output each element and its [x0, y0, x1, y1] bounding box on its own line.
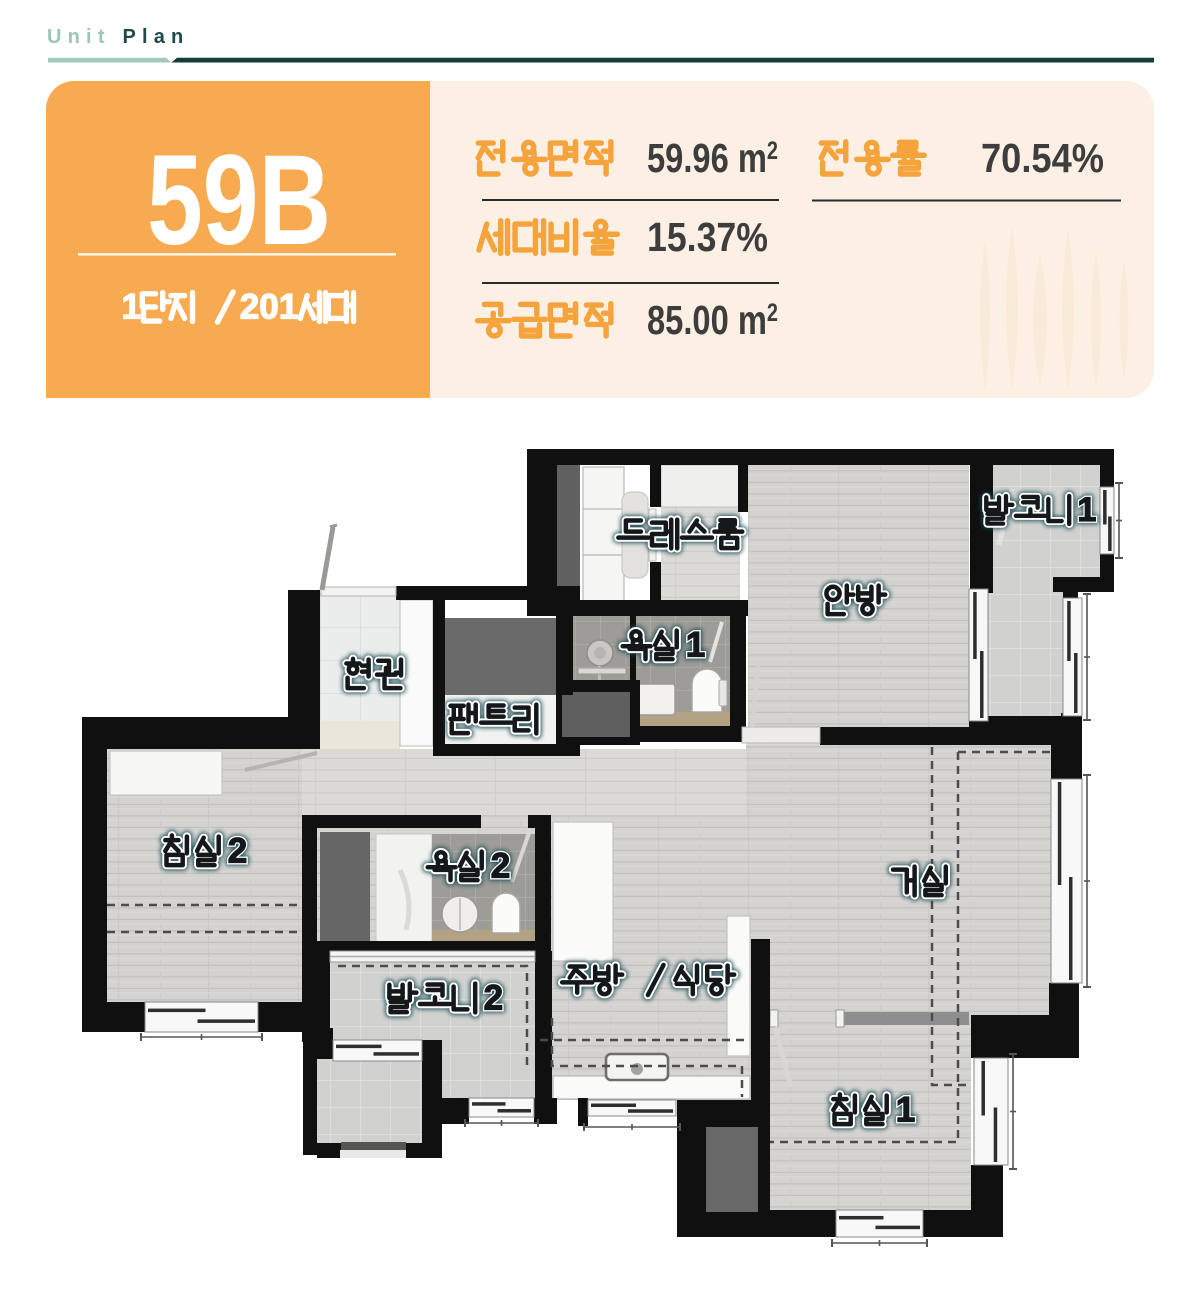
svg-text:1: 1 [686, 626, 705, 665]
svg-text:70.54%: 70.54% [981, 135, 1104, 181]
svg-text:59.96 m2: 59.96 m2 [647, 135, 778, 181]
svg-text:1: 1 [1077, 491, 1096, 529]
svg-text:59B: 59B [147, 129, 331, 272]
svg-text:15.37%: 15.37% [647, 214, 768, 260]
svg-text:1: 1 [122, 288, 141, 327]
svg-text:2: 2 [228, 832, 247, 871]
svg-text:85.00 m2: 85.00 m2 [647, 297, 778, 343]
svg-text:0: 0 [259, 288, 278, 327]
svg-text:1: 1 [896, 1091, 915, 1130]
svg-text:Unit Plan: Unit Plan [47, 26, 189, 48]
svg-text:1: 1 [279, 288, 298, 327]
svg-text:2: 2 [491, 847, 510, 886]
svg-text:2: 2 [240, 288, 259, 327]
svg-text:2: 2 [484, 979, 503, 1018]
